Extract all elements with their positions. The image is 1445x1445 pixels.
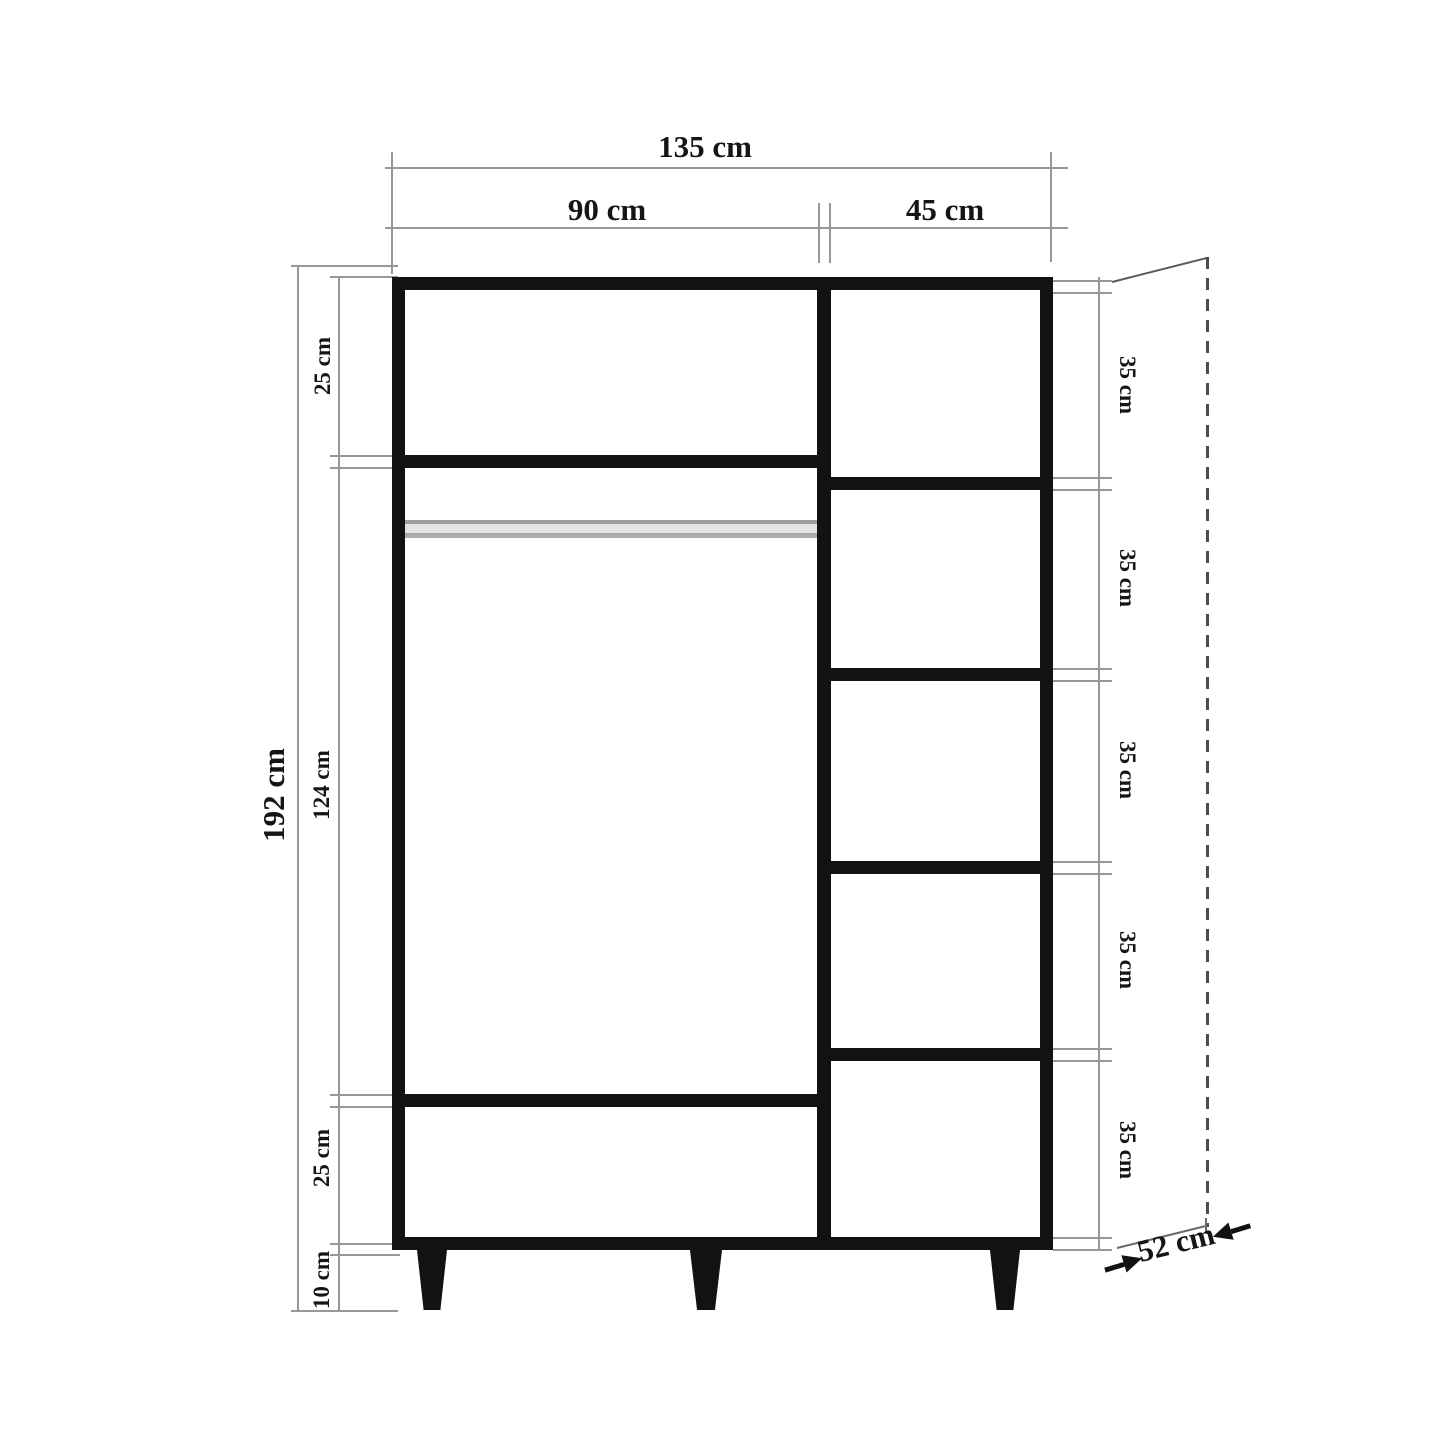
dim-line-total-width <box>385 167 1068 169</box>
dim-tick-r4b <box>1053 1060 1112 1062</box>
dim-line-total-height <box>297 265 299 1311</box>
label-shelf-height-4: 35 cm <box>1114 931 1140 989</box>
dim-tick-left-bottom-a <box>330 1243 400 1245</box>
depth-arrow-right-stem <box>1230 1223 1251 1234</box>
leg-right <box>990 1250 1020 1310</box>
dim-tick-r5a <box>1053 1237 1112 1239</box>
center-divider <box>817 290 831 1237</box>
dim-tick-r0b <box>1053 292 1112 294</box>
label-lower-left-height: 25 cm <box>309 1129 335 1187</box>
dim-tick-r3b <box>1053 873 1112 875</box>
left-top-shelf <box>405 455 817 468</box>
dim-tick-r3a <box>1053 861 1112 863</box>
dim-tick-split-a <box>818 203 820 263</box>
label-depth: 52 cm <box>1134 1216 1219 1270</box>
label-leg-height: 10 cm <box>309 1251 335 1309</box>
left-bottom-shelf <box>405 1094 817 1107</box>
label-right-section-width: 45 cm <box>906 192 984 228</box>
dim-tick-r1b <box>1053 489 1112 491</box>
wardrobe-dimension-diagram: 135 cm 90 cm 45 cm 192 cm 25 cm 124 cm 2… <box>0 0 1445 1445</box>
dim-tick-legs-bottom <box>291 1310 398 1312</box>
leg-middle <box>690 1250 722 1310</box>
dim-tick-left-lower-b <box>330 1106 400 1108</box>
label-shelf-height-3: 35 cm <box>1114 741 1140 799</box>
dim-line-left-sections <box>338 276 340 1311</box>
dim-tick-left-bottom-b <box>330 1254 400 1256</box>
depth-projection-dashed-line <box>1206 257 1209 1227</box>
dim-tick-r2b <box>1053 680 1112 682</box>
depth-projection-top-line <box>1112 257 1207 283</box>
leg-left <box>417 1250 447 1310</box>
dim-tick-r1a <box>1053 477 1112 479</box>
label-shelf-height-5: 35 cm <box>1114 1121 1140 1179</box>
dim-tick-r0a <box>1053 280 1112 282</box>
dim-ext-top-left <box>391 152 393 274</box>
dim-ext-top-right <box>1050 152 1052 262</box>
dim-tick-left-shelf-b <box>330 467 400 469</box>
label-middle-left-height: 124 cm <box>309 750 335 820</box>
right-shelf-4 <box>831 1048 1040 1061</box>
dim-line-right-shelves <box>1098 277 1100 1250</box>
label-total-height: 192 cm <box>256 748 292 842</box>
dim-tick-left-lower-a <box>330 1094 400 1096</box>
depth-arrow-left-stem <box>1104 1261 1125 1272</box>
hanging-rod <box>405 520 817 538</box>
dim-tick-r4a <box>1053 1048 1112 1050</box>
dim-tick-r2a <box>1053 668 1112 670</box>
dim-tick-left-shelf-a <box>330 455 400 457</box>
dim-tick-left-top-b <box>330 276 398 278</box>
dim-tick-left-top-a <box>291 265 398 267</box>
depth-arrow-right <box>1210 1217 1253 1246</box>
label-upper-left-height: 25 cm <box>310 337 336 395</box>
label-shelf-height-1: 35 cm <box>1114 356 1140 414</box>
right-shelf-3 <box>831 861 1040 874</box>
label-left-section-width: 90 cm <box>568 192 646 228</box>
dim-tick-r5b <box>1053 1249 1112 1251</box>
right-shelf-1 <box>831 477 1040 490</box>
label-total-width: 135 cm <box>658 129 752 165</box>
label-shelf-height-2: 35 cm <box>1114 549 1140 607</box>
dim-tick-split-b <box>829 203 831 263</box>
right-shelf-2 <box>831 668 1040 681</box>
